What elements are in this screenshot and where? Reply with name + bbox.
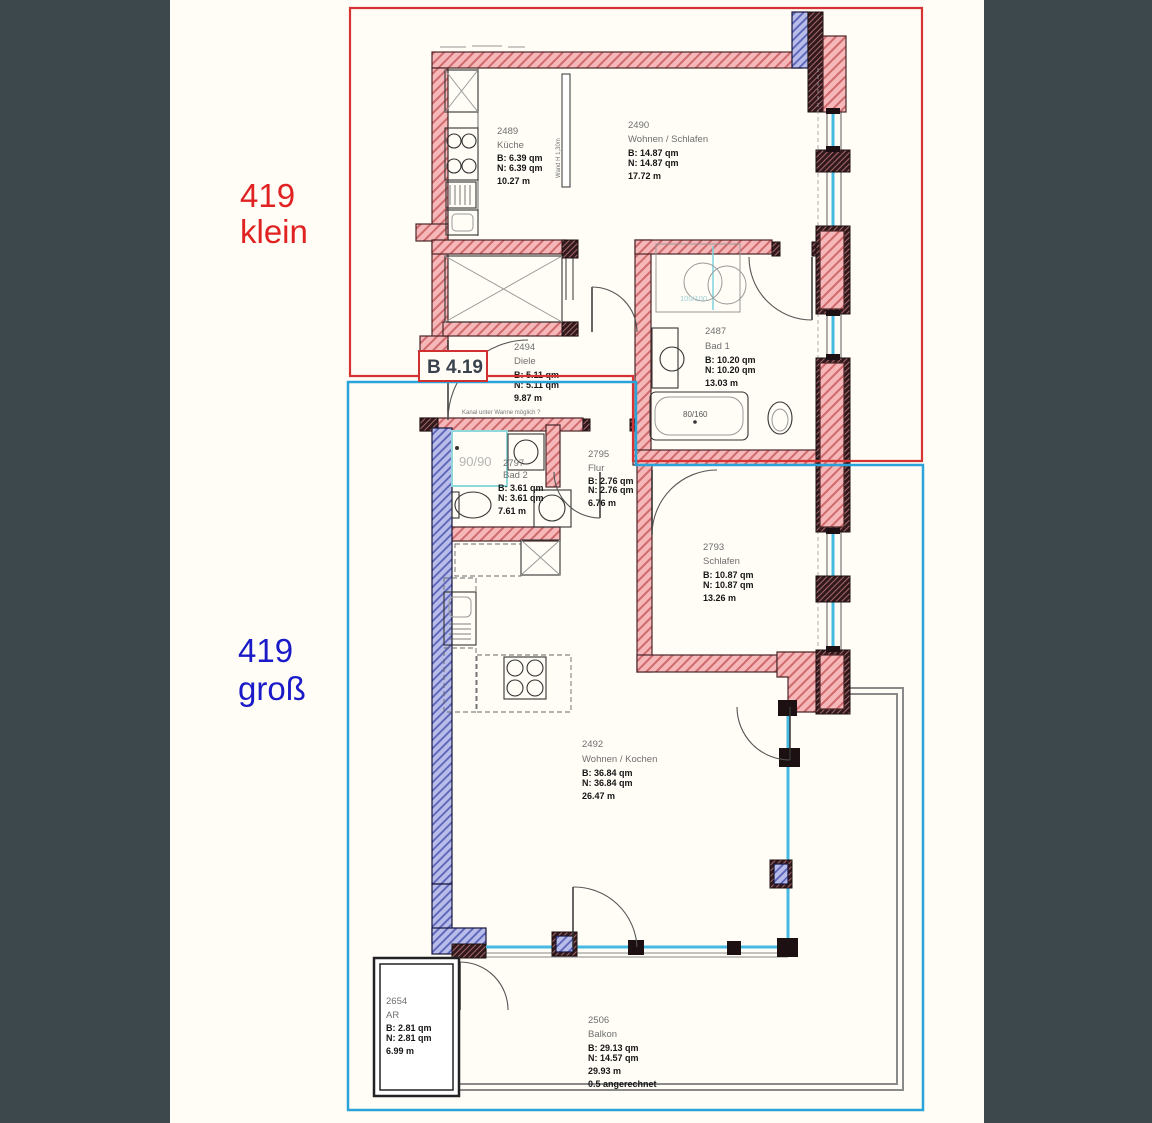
svg-text:B: 6.39 qm: B: 6.39 qm: [497, 153, 543, 163]
svg-text:N: 2.76 qm: N: 2.76 qm: [588, 485, 634, 495]
svg-text:2654: 2654: [386, 996, 407, 1007]
svg-text:2795: 2795: [588, 449, 609, 460]
svg-text:6.76 m: 6.76 m: [588, 498, 616, 508]
svg-text:Flur: Flur: [588, 463, 604, 474]
svg-text:419: 419: [238, 632, 293, 669]
svg-text:2793: 2793: [703, 542, 724, 553]
svg-text:13.03 m: 13.03 m: [705, 378, 738, 388]
svg-text:9.87 m: 9.87 m: [514, 393, 542, 403]
svg-text:N: 14.87 qm: N: 14.87 qm: [628, 158, 679, 168]
duct-note: Kanal unter Wanne möglich ?: [462, 410, 541, 416]
plan-number-badge: B 4.19: [419, 351, 487, 381]
low-wall-note: Wand H 1,30m: [556, 138, 562, 178]
svg-text:10.27 m: 10.27 m: [497, 176, 530, 186]
svg-text:N: 14.57 qm: N: 14.57 qm: [588, 1053, 639, 1063]
wall-bad1-bottom: [633, 450, 824, 465]
svg-text:2492: 2492: [582, 739, 603, 750]
wall-schlafen-bottom: [637, 655, 777, 672]
svg-text:Bad 2: Bad 2: [503, 470, 528, 481]
svg-text:2489: 2489: [497, 126, 518, 137]
shower-bad2-label: 90/90: [459, 454, 492, 469]
wall-bad2-bottom: [436, 527, 560, 541]
svg-text:Schlafen: Schlafen: [703, 556, 740, 567]
svg-text:2490: 2490: [628, 120, 649, 131]
wall-schlafen-left: [637, 465, 652, 672]
svg-text:klein: klein: [240, 213, 308, 250]
floor-plan-sheet: 2489 Küche B: 6.39 qm N: 6.39 qm 10.27 m…: [0, 0, 1152, 1123]
svg-text:2487: 2487: [705, 326, 726, 337]
floor-plan-drawing: 2489 Küche B: 6.39 qm N: 6.39 qm 10.27 m…: [0, 0, 1152, 1123]
svg-text:N: 36.84 qm: N: 36.84 qm: [582, 778, 633, 788]
svg-text:AR: AR: [386, 1010, 399, 1021]
svg-text:B: 29.13 qm: B: 29.13 qm: [588, 1043, 639, 1053]
svg-text:13.26 m: 13.26 m: [703, 593, 736, 603]
svg-text:B: 3.61 qm: B: 3.61 qm: [498, 483, 544, 493]
svg-text:26.47 m: 26.47 m: [582, 791, 615, 801]
window-pillar: [816, 150, 850, 172]
wall-left-lower-purple: [432, 428, 452, 884]
svg-text:N: 2.81 qm: N: 2.81 qm: [386, 1033, 432, 1043]
svg-text:2506: 2506: [588, 1015, 609, 1026]
svg-text:2797: 2797: [503, 458, 524, 469]
svg-text:Wohnen / Schlafen: Wohnen / Schlafen: [628, 134, 708, 145]
bathtub-label: 80/160: [683, 410, 708, 419]
svg-text:Balkon: Balkon: [588, 1029, 617, 1040]
svg-text:7.61 m: 7.61 m: [498, 506, 526, 516]
svg-text:2494: 2494: [514, 342, 535, 353]
svg-text:Diele: Diele: [514, 356, 536, 367]
svg-text:17.72 m: 17.72 m: [628, 171, 661, 181]
svg-text:29.93 m: 29.93 m: [588, 1066, 621, 1076]
svg-text:B: 10.20 qm: B: 10.20 qm: [705, 355, 756, 365]
svg-text:N: 10.87 qm: N: 10.87 qm: [703, 580, 754, 590]
pillar-top-purple: [792, 12, 808, 68]
svg-text:N: 3.61 qm: N: 3.61 qm: [498, 493, 544, 503]
svg-text:B: 10.87 qm: B: 10.87 qm: [703, 570, 754, 580]
svg-text:groß: groß: [238, 670, 306, 707]
shower-bad1-label: 100/100: [680, 294, 707, 303]
wall-bad1-left: [635, 240, 651, 465]
svg-text:B: 36.84 qm: B: 36.84 qm: [582, 768, 633, 778]
svg-text:Wohnen / Kochen: Wohnen / Kochen: [582, 754, 657, 765]
svg-text:N: 6.39 qm: N: 6.39 qm: [497, 163, 543, 173]
svg-text:B: 2.81 qm: B: 2.81 qm: [386, 1023, 432, 1033]
wall-bad2-right: [546, 425, 560, 487]
wall-top: [432, 52, 802, 68]
balkon-note: 0.5 angerechnet: [588, 1079, 657, 1089]
svg-text:N: 10.20 qm: N: 10.20 qm: [705, 365, 756, 375]
low-wall: [562, 74, 570, 187]
svg-text:B: 14.87 qm: B: 14.87 qm: [628, 148, 679, 158]
svg-text:419: 419: [240, 177, 295, 214]
svg-text:6.99 m: 6.99 m: [386, 1046, 414, 1056]
svg-text:Küche: Küche: [497, 140, 524, 151]
svg-text:Bad 1: Bad 1: [705, 341, 730, 352]
svg-text:B 4.19: B 4.19: [427, 357, 483, 378]
